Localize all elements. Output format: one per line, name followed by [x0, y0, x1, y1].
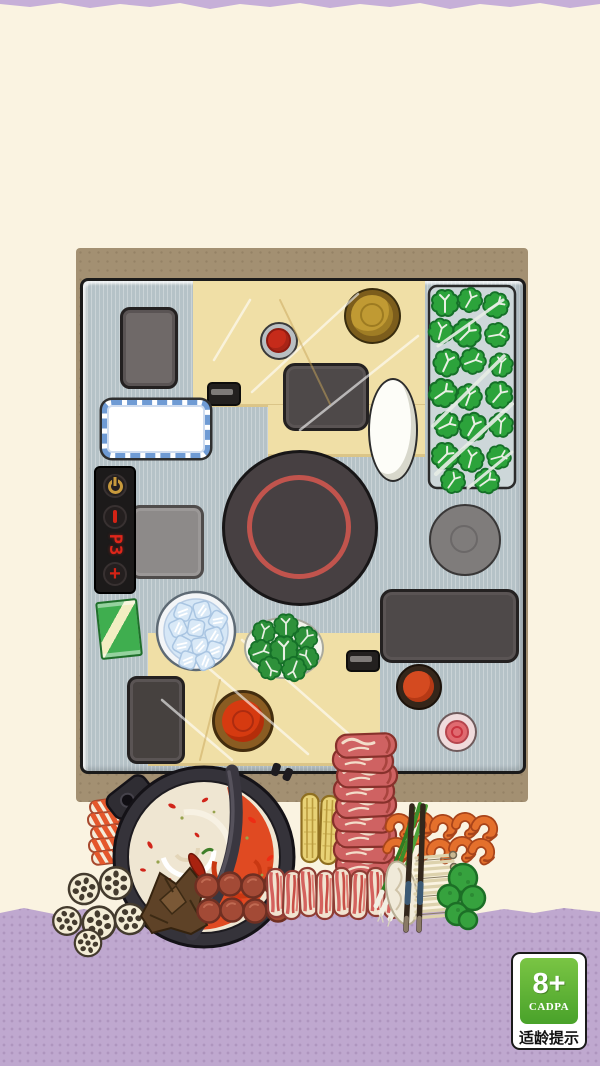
cilantro-bunch: [246, 614, 322, 684]
age-rating-authority: CADPA: [529, 1001, 569, 1013]
age-rating-green-panel: 8+ CADPA: [520, 958, 578, 1024]
food-scene-layer: [0, 0, 600, 1066]
beef-slice-stack[interactable]: [332, 733, 397, 877]
pot-knob: [270, 762, 282, 777]
cilantro-plate[interactable]: [245, 614, 323, 684]
age-rating-badge: 8+ CADPA 适龄提示: [511, 952, 587, 1050]
age-rating-value: 8+: [532, 970, 565, 999]
pot-knob: [281, 767, 294, 782]
age-rating-caption: 适龄提示: [519, 1027, 579, 1048]
ice-bowl[interactable]: [157, 592, 235, 672]
corn-cobs[interactable]: [302, 794, 339, 864]
board-grain-lines: [162, 294, 418, 760]
hotpot-game-screen: P3 +: [0, 0, 600, 1066]
greens-tray[interactable]: [424, 284, 517, 498]
